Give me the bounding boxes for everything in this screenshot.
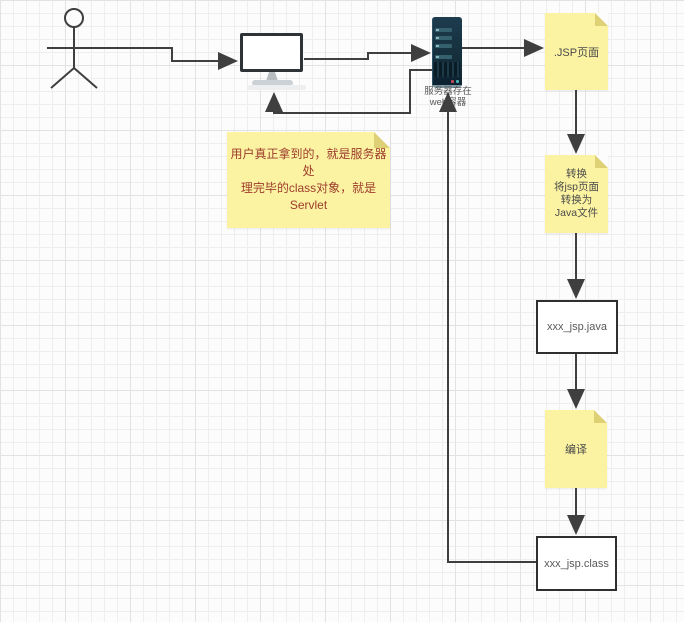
diagram-canvas: 服务器存在 web容器 .JSP页面 转换 将jsp页面 转换为 Java文件 …: [0, 0, 684, 622]
box-class-file-label: xxx_jsp.class: [544, 558, 609, 570]
client-computer[interactable]: [240, 33, 310, 91]
note-convert[interactable]: 转换 将jsp页面 转换为 Java文件: [545, 155, 608, 233]
monitor-screen-icon: [240, 33, 303, 72]
note-convert-line1: 转换: [545, 168, 608, 181]
keyboard-icon: [248, 85, 306, 90]
server-drive-bay-icon: [435, 44, 452, 48]
actor-leg-right-icon: [74, 68, 97, 88]
server-led-teal-icon: [456, 80, 459, 83]
note-servlet-line2: 理完毕的class对象，就是Servlet: [227, 180, 390, 214]
web-server[interactable]: [432, 17, 462, 89]
actor-head-icon: [65, 9, 83, 27]
note-jsp-page[interactable]: .JSP页面: [545, 13, 608, 90]
note-convert-line4: Java文件: [545, 207, 608, 220]
edge-class-to-server[interactable]: [448, 94, 536, 562]
edge-client-to-server[interactable]: [304, 53, 429, 59]
box-java-file[interactable]: xxx_jsp.java: [536, 300, 618, 354]
box-class-file[interactable]: xxx_jsp.class: [536, 536, 617, 591]
server-drive-bay-icon: [435, 28, 452, 32]
note-servlet-line1: 用户真正拿到的，就是服务器处: [227, 146, 390, 180]
actor-user[interactable]: [47, 9, 103, 88]
note-compile[interactable]: 编译: [545, 410, 607, 488]
note-convert-line2: 将jsp页面: [545, 181, 608, 194]
note-servlet-explanation[interactable]: 用户真正拿到的，就是服务器处 理完毕的class对象，就是Servlet: [227, 132, 390, 228]
server-led-red-icon: [451, 80, 454, 83]
edge-user-to-client[interactable]: [103, 48, 236, 61]
box-java-file-label: xxx_jsp.java: [547, 321, 607, 333]
note-compile-text: 编译: [565, 441, 587, 457]
server-drive-bay-icon: [435, 55, 452, 59]
server-vent-icon: [434, 62, 460, 77]
note-jsp-page-text: .JSP页面: [554, 44, 599, 60]
note-convert-line3: 转换为: [545, 194, 608, 207]
actor-leg-left-icon: [51, 68, 74, 88]
server-drive-bay-icon: [435, 36, 452, 40]
